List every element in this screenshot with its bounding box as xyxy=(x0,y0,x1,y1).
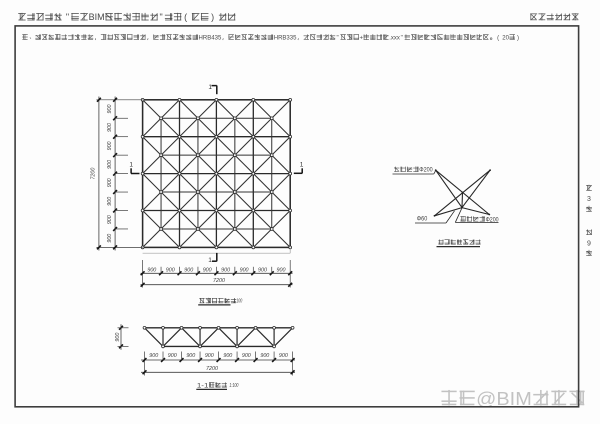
svg-text:.xxx: .xxx xyxy=(389,36,400,42)
svg-text:9: 9 xyxy=(587,240,591,247)
svg-text:900: 900 xyxy=(107,215,113,224)
svg-text:900: 900 xyxy=(203,267,212,273)
svg-text:900: 900 xyxy=(107,105,113,114)
svg-text:900: 900 xyxy=(147,267,156,273)
svg-text:BIM: BIM xyxy=(89,12,105,22)
svg-text:900: 900 xyxy=(258,267,267,273)
svg-text:": " xyxy=(401,36,403,42)
svg-text:Φ200: Φ200 xyxy=(419,167,433,174)
svg-text:900: 900 xyxy=(149,353,158,359)
svg-text:Φ200: Φ200 xyxy=(486,216,499,223)
svg-text:900: 900 xyxy=(166,267,175,273)
svg-text:900: 900 xyxy=(107,234,113,243)
svg-text:(: ( xyxy=(184,12,187,22)
svg-text:Φ60: Φ60 xyxy=(417,215,428,222)
svg-text:): ) xyxy=(211,12,214,22)
svg-text:7200: 7200 xyxy=(90,168,96,180)
svg-text:900: 900 xyxy=(107,123,113,132)
svg-text:3: 3 xyxy=(587,196,591,203)
svg-text:900: 900 xyxy=(107,141,113,150)
svg-text:900: 900 xyxy=(107,178,113,187)
svg-text:": " xyxy=(66,12,69,22)
svg-text:900: 900 xyxy=(240,267,249,273)
svg-text:1:100: 1:100 xyxy=(229,383,238,389)
svg-text:1: 1 xyxy=(300,161,304,168)
svg-text:1: 1 xyxy=(208,257,212,264)
svg-text:7200: 7200 xyxy=(213,278,225,284)
svg-text:1: 1 xyxy=(208,84,212,91)
svg-text:900: 900 xyxy=(277,267,286,273)
svg-text:900: 900 xyxy=(242,353,251,359)
svg-text:900: 900 xyxy=(260,353,269,359)
svg-text:900: 900 xyxy=(107,160,113,169)
svg-text:): ) xyxy=(517,36,519,42)
svg-text:900: 900 xyxy=(168,353,177,359)
svg-text:1:100: 1:100 xyxy=(233,298,242,304)
svg-text:900: 900 xyxy=(184,267,193,273)
svg-text:900: 900 xyxy=(221,267,230,273)
svg-text:HRB335: HRB335 xyxy=(274,36,297,42)
svg-text:HRB435: HRB435 xyxy=(199,36,222,42)
svg-text:+: + xyxy=(360,36,364,42)
svg-text:7200: 7200 xyxy=(206,366,218,372)
svg-text:20: 20 xyxy=(502,36,509,42)
svg-text:900: 900 xyxy=(223,353,232,359)
svg-text:900: 900 xyxy=(107,197,113,206)
svg-text:900: 900 xyxy=(186,353,195,359)
svg-text:1-1: 1-1 xyxy=(197,382,209,389)
svg-text:900: 900 xyxy=(205,353,214,359)
svg-text:(: ( xyxy=(497,36,499,42)
svg-text:1: 1 xyxy=(129,161,133,168)
svg-text:900: 900 xyxy=(279,353,288,359)
svg-text:": " xyxy=(336,36,338,42)
svg-text:": " xyxy=(159,12,162,22)
svg-text:900: 900 xyxy=(115,333,121,342)
svg-text:@BIM: @BIM xyxy=(476,389,532,409)
